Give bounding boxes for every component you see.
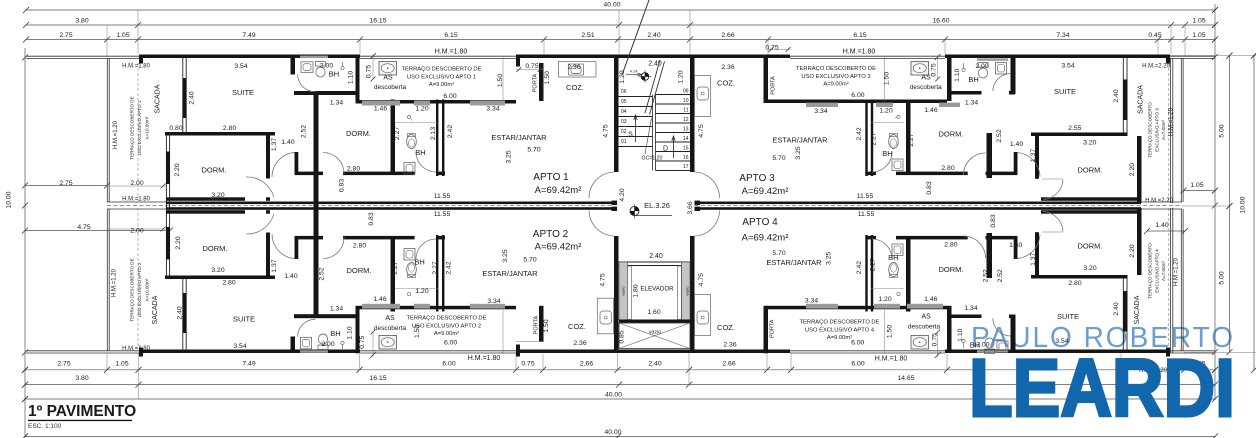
svg-text:3.34: 3.34 — [486, 106, 499, 113]
svg-text:AS: AS — [385, 315, 395, 322]
svg-text:vazio: vazio — [620, 286, 625, 296]
svg-text:2.13: 2.13 — [430, 127, 437, 140]
svg-text:H.M.=1.80: H.M.=1.80 — [122, 346, 151, 352]
svg-text:S: S — [628, 132, 633, 139]
svg-text:0.75: 0.75 — [932, 333, 939, 346]
svg-text:COZ.: COZ. — [717, 79, 735, 88]
svg-text:SACADA: SACADA — [152, 295, 159, 324]
svg-text:0.83: 0.83 — [926, 181, 933, 194]
svg-text:H.M.=1.20: H.M.=1.20 — [113, 120, 119, 149]
svg-text:descoberta: descoberta — [908, 323, 941, 330]
svg-text:1.50: 1.50 — [887, 325, 894, 338]
svg-text:BH: BH — [415, 148, 425, 157]
svg-text:6.00: 6.00 — [851, 92, 864, 99]
svg-text:PORTA: PORTA — [770, 319, 776, 338]
svg-text:3.80: 3.80 — [75, 375, 88, 382]
svg-text:0.83: 0.83 — [990, 214, 997, 227]
svg-text:A=7.00m²: A=7.00m² — [1161, 261, 1166, 282]
svg-text:1.40: 1.40 — [1155, 222, 1168, 229]
svg-text:EL.3.26: EL.3.26 — [644, 201, 670, 210]
svg-text:5.70: 5.70 — [772, 250, 785, 257]
svg-text:4.75: 4.75 — [603, 124, 610, 137]
svg-text:1.10: 1.10 — [954, 68, 961, 81]
svg-text:AS: AS — [921, 314, 931, 321]
svg-text:0.83: 0.83 — [368, 212, 375, 225]
svg-text:2.80: 2.80 — [1068, 280, 1081, 287]
svg-text:ESTAR/JANTAR: ESTAR/JANTAR — [482, 269, 538, 278]
svg-text:2.42: 2.42 — [447, 125, 454, 138]
svg-text:1.40: 1.40 — [1010, 141, 1023, 148]
svg-text:2.66: 2.66 — [580, 361, 593, 368]
svg-text:H.M.=2.20: H.M.=2.20 — [1145, 198, 1174, 204]
svg-text:DORM.: DORM. — [1078, 166, 1103, 175]
svg-text:ESC. 1:100: ESC. 1:100 — [28, 423, 62, 430]
svg-text:2.27: 2.27 — [869, 258, 876, 271]
svg-text:05: 05 — [621, 99, 627, 105]
svg-text:TERRAÇO DESCOBERTO: TERRAÇO DESCOBERTO — [1148, 102, 1153, 158]
svg-text:2.66: 2.66 — [722, 361, 735, 368]
svg-text:2.80: 2.80 — [347, 165, 360, 172]
svg-text:1.10: 1.10 — [347, 326, 354, 339]
svg-text:1.40: 1.40 — [284, 273, 297, 280]
svg-text:SUITE: SUITE — [1054, 87, 1076, 96]
svg-text:ESTAR/JANTAR: ESTAR/JANTAR — [491, 133, 547, 142]
svg-text:0.83: 0.83 — [339, 179, 346, 192]
svg-text:14: 14 — [683, 136, 689, 142]
svg-text:2.40: 2.40 — [647, 32, 660, 39]
svg-text:2.75: 2.75 — [59, 180, 72, 187]
svg-text:APTO 1: APTO 1 — [533, 172, 569, 183]
svg-text:H.M.=1.20: H.M.=1.20 — [1169, 107, 1175, 136]
svg-text:2.75: 2.75 — [59, 32, 72, 39]
svg-text:1.10: 1.10 — [348, 71, 355, 84]
svg-text:A=69.42m²: A=69.42m² — [535, 185, 582, 196]
svg-text:1.37: 1.37 — [1030, 252, 1037, 265]
svg-text:11.55: 11.55 — [434, 211, 451, 218]
svg-text:EXCLUSIVO APTO 4: EXCLUSIVO APTO 4 — [1155, 249, 1160, 293]
svg-text:TERRAÇO DESCOBERTO DE: TERRAÇO DESCOBERTO DE — [796, 66, 876, 72]
svg-text:SACADA: SACADA — [155, 84, 162, 113]
svg-text:3.34: 3.34 — [805, 298, 818, 305]
svg-text:5.00: 5.00 — [1219, 124, 1226, 137]
svg-text:TERRAÇO DESCOBERTO DE: TERRAÇO DESCOBERTO DE — [130, 258, 135, 321]
svg-text:DORM.: DORM. — [939, 130, 964, 139]
svg-text:2.80: 2.80 — [941, 165, 954, 172]
svg-text:1.34: 1.34 — [965, 100, 978, 107]
svg-text:1.50: 1.50 — [543, 319, 550, 332]
svg-text:6.15: 6.15 — [853, 32, 866, 39]
svg-text:2.42: 2.42 — [856, 261, 863, 274]
svg-text:5.70: 5.70 — [523, 257, 536, 264]
svg-text:13: 13 — [683, 126, 689, 132]
svg-text:1.50: 1.50 — [884, 72, 891, 85]
svg-text:2.36: 2.36 — [721, 64, 734, 71]
svg-text:2.40: 2.40 — [1113, 302, 1120, 315]
svg-text:3.34: 3.34 — [487, 298, 500, 305]
svg-text:2.80: 2.80 — [944, 242, 957, 249]
svg-text:17: 17 — [683, 164, 689, 170]
svg-text:DORM.: DORM. — [1078, 242, 1103, 251]
svg-text:2.52: 2.52 — [301, 125, 308, 138]
svg-text:0.75: 0.75 — [521, 361, 534, 368]
svg-text:2.55: 2.55 — [1068, 125, 1081, 132]
svg-text:11.55: 11.55 — [434, 193, 451, 200]
svg-text:16.15: 16.15 — [369, 18, 386, 25]
svg-text:2.40: 2.40 — [648, 361, 661, 368]
svg-text:H.M.=1.20: H.M.=1.20 — [1174, 257, 1180, 286]
svg-text:4.75: 4.75 — [698, 124, 705, 137]
svg-text:5.70: 5.70 — [772, 155, 785, 162]
svg-text:3.25: 3.25 — [826, 252, 833, 265]
svg-text:06: 06 — [621, 89, 627, 95]
svg-text:2.20: 2.20 — [174, 163, 181, 176]
svg-text:11: 11 — [683, 108, 688, 114]
svg-text:ELEVADOR: ELEVADOR — [640, 286, 674, 293]
svg-text:A=7.00m²: A=7.00m² — [1161, 120, 1166, 141]
svg-text:40.00: 40.00 — [603, 2, 620, 9]
svg-text:H.M.=2.20: H.M.=2.20 — [1142, 63, 1171, 69]
svg-text:16.60: 16.60 — [932, 18, 949, 25]
svg-text:2.75: 2.75 — [57, 361, 70, 368]
svg-text:A=9.00m²: A=9.00m² — [823, 81, 848, 87]
svg-text:DORM.: DORM. — [346, 129, 371, 138]
svg-text:A=9.00m²: A=9.00m² — [827, 335, 852, 341]
svg-text:A=10.00m²: A=10.00m² — [145, 278, 150, 301]
svg-text:H.M.=1.80: H.M.=1.80 — [843, 49, 876, 56]
svg-text:GC=1.20: GC=1.20 — [642, 155, 663, 161]
svg-text:2.80: 2.80 — [223, 125, 236, 132]
svg-text:DORM.: DORM. — [202, 166, 227, 175]
svg-text:2.20: 2.20 — [1129, 244, 1136, 257]
svg-text:6.00: 6.00 — [851, 361, 864, 368]
svg-text:A=69.42m²: A=69.42m² — [742, 186, 789, 197]
svg-text:APTO 3: APTO 3 — [739, 173, 775, 184]
svg-text:APTO 2: APTO 2 — [533, 229, 569, 240]
svg-text:0.45: 0.45 — [1148, 32, 1161, 39]
svg-text:6.00: 6.00 — [851, 339, 864, 346]
svg-text:1.10: 1.10 — [957, 328, 964, 341]
svg-text:1º PAVIMENTO: 1º PAVIMENTO — [28, 403, 136, 420]
svg-text:2.52: 2.52 — [996, 129, 1003, 142]
svg-text:BH: BH — [330, 329, 340, 338]
svg-text:1.37: 1.37 — [271, 138, 278, 151]
svg-text:2.00: 2.00 — [975, 63, 988, 70]
svg-text:PORTA: PORTA — [533, 73, 539, 92]
svg-text:H.M.=1.80: H.M.=1.80 — [468, 355, 501, 362]
svg-text:0.75: 0.75 — [525, 63, 538, 70]
svg-text:1.46: 1.46 — [924, 296, 937, 303]
svg-text:A=9.00m²: A=9.00m² — [434, 331, 459, 337]
svg-text:0.75: 0.75 — [366, 65, 373, 78]
svg-text:40.00: 40.00 — [604, 429, 621, 436]
svg-text:2.27: 2.27 — [908, 133, 915, 146]
svg-text:BH: BH — [414, 258, 424, 267]
svg-text:7.34: 7.34 — [1056, 32, 1069, 39]
svg-text:1.05: 1.05 — [1192, 32, 1205, 39]
svg-text:SUITE: SUITE — [1057, 312, 1079, 321]
svg-text:2.00: 2.00 — [320, 63, 333, 70]
svg-text:5.70: 5.70 — [527, 147, 540, 154]
svg-text:0.75: 0.75 — [765, 45, 778, 52]
svg-text:6.00: 6.00 — [443, 93, 456, 100]
svg-text:3.54: 3.54 — [233, 343, 246, 350]
svg-text:2.40: 2.40 — [189, 91, 196, 104]
svg-text:COZ.: COZ. — [568, 322, 586, 331]
svg-text:3.25: 3.25 — [506, 150, 513, 163]
svg-text:BH: BH — [882, 149, 892, 158]
svg-text:11.55: 11.55 — [857, 193, 874, 200]
svg-text:3.25: 3.25 — [502, 249, 509, 262]
svg-text:USO EXCLUSIVO APTO 1: USO EXCLUSIVO APTO 1 — [407, 74, 476, 80]
svg-text:1.20: 1.20 — [878, 296, 891, 303]
svg-text:descoberta: descoberta — [374, 84, 407, 91]
svg-text:2.27: 2.27 — [432, 261, 439, 274]
svg-text:40.00: 40.00 — [605, 392, 622, 399]
svg-text:10.00: 10.00 — [1240, 196, 1247, 213]
svg-text:COZ.: COZ. — [566, 83, 584, 92]
svg-text:DORM.: DORM. — [347, 266, 372, 275]
svg-text:12: 12 — [683, 117, 689, 123]
svg-text:3.20: 3.20 — [211, 192, 224, 199]
svg-text:04: 04 — [621, 109, 627, 115]
svg-text:2.80: 2.80 — [222, 280, 235, 287]
svg-text:5.00: 5.00 — [1219, 271, 1226, 284]
svg-text:2.52: 2.52 — [997, 269, 1004, 282]
svg-text:10.00: 10.00 — [6, 191, 13, 208]
svg-text:2.27: 2.27 — [871, 132, 878, 145]
svg-text:1.20: 1.20 — [678, 70, 685, 83]
svg-text:2.52: 2.52 — [983, 269, 990, 282]
svg-text:4.14: 4.14 — [630, 68, 639, 73]
svg-text:1.20: 1.20 — [415, 288, 428, 295]
svg-text:H.M.=1.80: H.M.=1.80 — [122, 197, 151, 203]
svg-text:H.M.=1.20: H.M.=1.20 — [112, 268, 118, 297]
svg-text:6.00: 6.00 — [442, 361, 455, 368]
svg-text:4.20: 4.20 — [619, 188, 626, 201]
svg-text:descoberta: descoberta — [910, 84, 943, 91]
svg-text:14.65: 14.65 — [897, 375, 914, 382]
svg-text:16.15: 16.15 — [369, 375, 386, 382]
svg-text:3.54: 3.54 — [234, 63, 247, 70]
svg-text:2.42: 2.42 — [446, 261, 453, 274]
svg-text:0.80: 0.80 — [169, 125, 182, 132]
svg-text:2.42: 2.42 — [856, 127, 863, 140]
svg-text:BH: BH — [968, 75, 978, 84]
svg-text:16: 16 — [683, 155, 689, 161]
svg-text:2.40: 2.40 — [177, 306, 184, 319]
svg-text:2.66: 2.66 — [721, 32, 734, 39]
svg-text:ESTAR/JANTAR: ESTAR/JANTAR — [772, 136, 828, 145]
svg-text:1.50: 1.50 — [544, 71, 551, 84]
svg-text:A=69.42m²: A=69.42m² — [535, 242, 582, 253]
svg-text:3.80: 3.80 — [75, 18, 88, 25]
svg-text:H.M.=1.80: H.M.=1.80 — [875, 355, 908, 362]
svg-text:6.00: 6.00 — [444, 339, 457, 346]
svg-text:SUITE: SUITE — [232, 88, 254, 97]
svg-text:2.27: 2.27 — [392, 261, 399, 274]
svg-text:EXCLUSIVO APTO 3: EXCLUSIVO APTO 3 — [1155, 108, 1160, 152]
svg-text:1.40: 1.40 — [281, 139, 294, 146]
svg-text:2.00: 2.00 — [130, 180, 143, 187]
svg-text:6.15: 6.15 — [444, 32, 457, 39]
svg-text:BH: BH — [888, 253, 898, 262]
svg-text:1.34: 1.34 — [330, 306, 343, 313]
svg-text:USO EXCLUSIVO APTO 2: USO EXCLUSIVO APTO 2 — [412, 323, 481, 329]
svg-text:A=9.00m²: A=9.00m² — [429, 82, 454, 88]
svg-text:A=69.42m²: A=69.42m² — [742, 233, 789, 244]
svg-text:1.05: 1.05 — [115, 361, 128, 368]
svg-text:ESTAR/JANTAR: ESTAR/JANTAR — [766, 258, 822, 267]
svg-text:1.80: 1.80 — [633, 284, 640, 297]
svg-text:SACADA: SACADA — [1134, 295, 1141, 324]
svg-text:3.25: 3.25 — [795, 146, 802, 159]
svg-text:LEARDI: LEARDI — [969, 343, 1235, 434]
svg-text:3.54: 3.54 — [1061, 63, 1074, 70]
svg-text:7.49: 7.49 — [242, 361, 255, 368]
svg-text:2.52: 2.52 — [319, 267, 326, 280]
svg-text:09: 09 — [683, 89, 689, 95]
svg-text:1.46: 1.46 — [924, 107, 937, 114]
svg-text:2.80: 2.80 — [353, 242, 366, 249]
svg-text:1.37: 1.37 — [1030, 149, 1037, 162]
svg-text:1.05: 1.05 — [116, 32, 129, 39]
svg-text:3.20: 3.20 — [211, 267, 224, 274]
svg-text:2.27: 2.27 — [394, 127, 401, 140]
svg-text:02: 02 — [621, 129, 627, 135]
svg-text:03: 03 — [621, 119, 627, 125]
svg-text:TERRAÇO DESCOBERTO DE: TERRAÇO DESCOBERTO DE — [130, 96, 135, 159]
svg-text:AS: AS — [383, 75, 393, 82]
svg-text:4.75: 4.75 — [77, 224, 90, 231]
svg-text:2.36: 2.36 — [723, 342, 736, 349]
svg-text:0.75: 0.75 — [931, 63, 938, 76]
svg-text:2.00: 2.00 — [130, 227, 143, 234]
svg-text:1.34: 1.34 — [964, 305, 977, 312]
svg-text:D: D — [663, 146, 668, 153]
svg-text:descoberta: descoberta — [374, 325, 407, 332]
svg-text:2.20: 2.20 — [1129, 163, 1136, 176]
svg-text:10: 10 — [683, 98, 689, 104]
svg-text:1.40: 1.40 — [1009, 242, 1022, 249]
svg-text:3.66: 3.66 — [687, 201, 694, 214]
svg-text:TERRAÇO DESCOBERTO DE: TERRAÇO DESCOBERTO DE — [800, 320, 880, 326]
svg-text:APTO 4: APTO 4 — [742, 217, 778, 228]
svg-text:3.20: 3.20 — [1083, 265, 1096, 272]
svg-text:PORTA: PORTA — [534, 315, 540, 334]
svg-text:SACADA: SACADA — [1138, 85, 1145, 114]
svg-text:2.36: 2.36 — [567, 64, 580, 71]
svg-text:USO EXCLUSIVO APTO 1: USO EXCLUSIVO APTO 1 — [137, 100, 142, 155]
svg-text:0.85: 0.85 — [619, 330, 626, 343]
svg-text:0.75: 0.75 — [359, 335, 366, 348]
svg-text:4.75: 4.75 — [600, 273, 607, 286]
svg-text:2.36: 2.36 — [573, 340, 586, 347]
svg-text:4.75: 4.75 — [698, 273, 705, 286]
svg-text:1.20: 1.20 — [879, 107, 892, 114]
svg-text:DORM.: DORM. — [939, 265, 964, 274]
svg-text:TERRAÇO DESCOBERTO DE: TERRAÇO DESCOBERTO DE — [402, 67, 482, 73]
svg-text:vazio: vazio — [684, 286, 689, 296]
svg-text:2.40: 2.40 — [1113, 89, 1120, 102]
svg-text:H.M.=1.80: H.M.=1.80 — [435, 49, 468, 56]
svg-text:SUITE: SUITE — [233, 315, 255, 324]
svg-text:1.34: 1.34 — [330, 100, 343, 107]
svg-text:1.05: 1.05 — [1192, 18, 1205, 25]
svg-text:BH: BH — [329, 70, 339, 79]
svg-text:3.34: 3.34 — [814, 108, 827, 115]
svg-text:vazio: vazio — [649, 330, 661, 336]
svg-text:2.00: 2.00 — [321, 341, 334, 348]
svg-text:DORM.: DORM. — [203, 244, 228, 253]
svg-text:USO EXCLUSIVO APTO 3: USO EXCLUSIVO APTO 3 — [801, 74, 870, 80]
svg-text:3.20: 3.20 — [1083, 140, 1096, 147]
svg-text:1.46: 1.46 — [374, 106, 387, 113]
svg-text:2.40: 2.40 — [649, 253, 663, 260]
svg-text:1.20: 1.20 — [415, 106, 428, 113]
svg-text:01: 01 — [621, 139, 627, 145]
svg-text:7.49: 7.49 — [242, 32, 255, 39]
svg-text:USO EXCLUSIVO APTO 4: USO EXCLUSIVO APTO 4 — [805, 328, 875, 334]
svg-text:PORTA: PORTA — [771, 76, 777, 95]
svg-text:1.46: 1.46 — [373, 296, 386, 303]
svg-text:2.51: 2.51 — [581, 32, 594, 39]
svg-text:H.M.=1.80: H.M.=1.80 — [122, 64, 151, 70]
svg-text:TERRAÇO DESCOBERTO: TERRAÇO DESCOBERTO — [1148, 243, 1153, 299]
svg-text:TERRAÇO DESCOBERTO DE: TERRAÇO DESCOBERTO DE — [407, 316, 487, 322]
svg-text:15: 15 — [683, 145, 689, 151]
svg-text:USO EXCLUSIVO APTO 2: USO EXCLUSIVO APTO 2 — [137, 262, 142, 317]
svg-text:2.20: 2.20 — [175, 236, 182, 249]
svg-text:1.05: 1.05 — [1190, 182, 1203, 189]
svg-text:COZ.: COZ. — [717, 323, 735, 332]
svg-text:1.60: 1.60 — [647, 309, 660, 316]
svg-text:11.55: 11.55 — [858, 211, 875, 218]
svg-text:1.50: 1.50 — [497, 74, 504, 87]
svg-text:A=10.00m²: A=10.00m² — [145, 116, 150, 139]
svg-text:1.37: 1.37 — [271, 259, 278, 272]
